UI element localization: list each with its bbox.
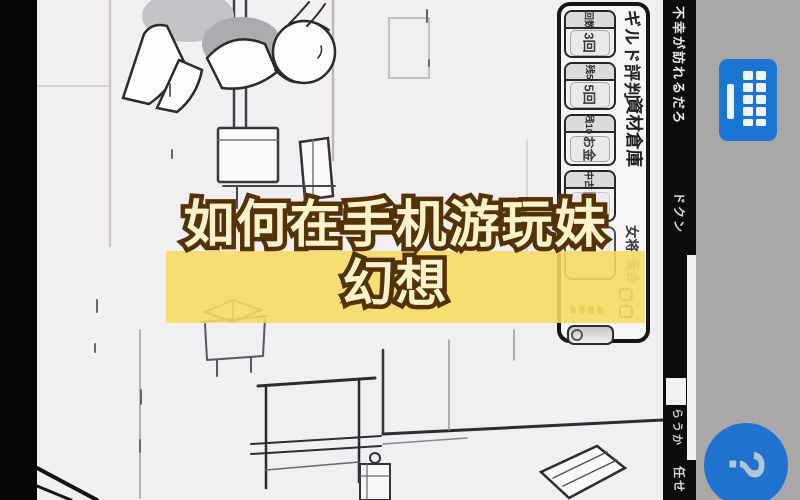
rotated-phone-screenshot: 回数 3回 残5 5回 残10 お金 中古 回復 ギルド評判 資材倉庫 女将 面… <box>0 0 800 500</box>
keyboard-spacebar <box>727 84 734 119</box>
menu-button-group-3[interactable]: 残10 お金 <box>564 114 616 166</box>
menu-button-group-2[interactable]: 残5 5回 <box>564 62 616 110</box>
circle-mark-icon <box>571 329 583 341</box>
group-2-button[interactable]: 5回 <box>570 82 610 108</box>
message-text-bottom: 任せ <box>671 466 688 494</box>
message-text-mid: ドクン <box>671 192 688 234</box>
group-3-header: 残10 <box>566 116 614 133</box>
keyboard-icon[interactable] <box>719 59 777 141</box>
message-white-box <box>666 378 686 405</box>
message-text-low: らうか <box>670 408 686 447</box>
banner-line-2: 幻想 <box>168 254 623 313</box>
question-mark-icon: ? <box>717 450 775 481</box>
group-1-button[interactable]: 3回 <box>570 30 610 56</box>
group-2-header: 残5 <box>566 64 614 81</box>
message-text-top: 不幸が訪れるだろ <box>670 6 689 125</box>
menu-button-group-1[interactable]: 回数 3回 <box>564 10 616 58</box>
group-4-header: 中古 <box>566 172 614 189</box>
group-3-button[interactable]: お金 <box>570 136 610 162</box>
banner-title: 如何在手机游玩妹 幻想 <box>168 195 623 313</box>
help-button[interactable]: ? <box>704 423 788 500</box>
letterbox-left <box>0 0 37 500</box>
keyboard-keys <box>743 71 766 126</box>
panel-label-warehouse: 資材倉庫 <box>622 97 647 167</box>
group-1-header: 回数 <box>566 12 614 29</box>
panel-title-guild-reputation: ギルド評判 <box>621 10 646 100</box>
panel-label-okami: 女将 <box>623 225 643 252</box>
banner-line-1: 如何在手机游玩妹 <box>168 195 623 254</box>
